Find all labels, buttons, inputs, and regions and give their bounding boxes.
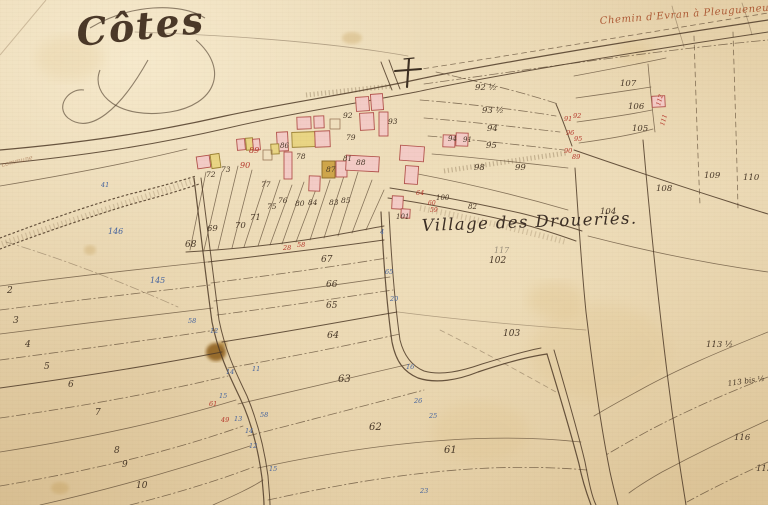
parcel-boundaries-part [0, 330, 216, 360]
building-pink [315, 131, 331, 148]
parcel-number: 81 [343, 155, 352, 163]
parcel-number: 100 [436, 194, 450, 202]
building-yellow [292, 132, 316, 148]
road-network-part [2, 180, 196, 244]
parcel-number: 105 [632, 124, 648, 134]
building-pink [309, 176, 321, 191]
parcel-boundaries-part [258, 438, 581, 468]
parcel-number: 92 ½ [475, 82, 497, 93]
parcel-number: 4 [24, 340, 31, 350]
building-pink [284, 152, 292, 179]
parcel-boundaries-part [204, 172, 222, 250]
parcel-boundaries-part [130, 466, 256, 505]
parcel-number: 28 [282, 244, 291, 252]
parcel-number: 15 [269, 465, 277, 473]
parcel-boundaries-part [190, 172, 206, 250]
parcel-boundaries-part [296, 184, 318, 242]
parcel-number: 9 [122, 460, 128, 470]
parcel-boundaries-part [352, 180, 372, 233]
parcel-number: 78 [296, 152, 306, 161]
parcel-boundaries-part [588, 236, 768, 272]
parcel-number: 108 [656, 184, 673, 194]
parcel-number: 5 [44, 362, 50, 372]
parcel-number: 20 [389, 295, 398, 303]
parcel-number: 80 [295, 199, 305, 208]
parcel-number: 62 [369, 422, 382, 433]
parcel-number: 4 [379, 228, 384, 236]
parcel-boundaries-part [556, 104, 572, 146]
parcel-number: 73 [221, 165, 231, 174]
parcel-number: 146 [108, 227, 123, 236]
parcel-number: 111 [659, 114, 669, 127]
building-yellow [210, 153, 221, 168]
parcel-number: 77 [261, 180, 271, 189]
parcel-number: 94 [487, 124, 498, 134]
parcel-boundaries-part [629, 420, 768, 493]
cadastral-map-scan: 2345678910616263646566676869707172737576… [0, 0, 768, 505]
parcel-number: 8 [114, 446, 120, 456]
parcel-number: 145 [150, 276, 165, 285]
parcel-number: 79 [346, 133, 356, 142]
parcel-number: 103 [503, 329, 520, 339]
parcel-boundaries-part [232, 170, 252, 248]
parcel-boundaries-part [733, 32, 738, 210]
building-pink [400, 145, 425, 162]
parcel-boundaries-part [222, 312, 397, 342]
wayside-cross-symbol-part [395, 69, 421, 71]
parcel-number: 60 [428, 200, 436, 207]
parcel-numbers-layer: 2345678910616263646566676869707172737576… [6, 79, 768, 495]
building-pink [314, 116, 324, 128]
parcel-number: 58 [260, 411, 268, 419]
parcel-number: 101 [396, 213, 409, 221]
parcel-boundaries-part [282, 182, 304, 244]
parcel-number: 70 [235, 221, 246, 231]
parcel-number: 115 [756, 464, 768, 474]
wayside-cross-symbol-part [404, 58, 414, 59]
road-network-part [194, 178, 264, 505]
parcel-number: 94 [448, 135, 457, 143]
parcel-number: 68 [185, 240, 197, 250]
parcel-boundaries-part [694, 36, 700, 205]
parcel-number: 92 [573, 112, 581, 120]
parcel-number: 102 [489, 256, 506, 266]
parcel-boundaries-part [0, 400, 236, 452]
parcel-number: 89 [572, 153, 580, 161]
parcel-boundaries-part [0, 308, 213, 334]
parcel-number: 71 [250, 213, 261, 223]
road-network-part [0, 176, 196, 238]
building-pink [196, 155, 211, 169]
parcel-number: 64 [416, 189, 424, 197]
parcel-boundaries-part [258, 180, 280, 246]
parcel-number: 82 [468, 203, 477, 211]
parcel-number: 106 [628, 102, 645, 112]
parcel-boundaries-part [211, 258, 387, 283]
parcel-boundaries-part [228, 334, 400, 368]
parcel-number: 14 [245, 427, 253, 435]
parcel-number: 93 [388, 117, 398, 126]
parcel-boundaries-part [574, 150, 768, 214]
paper-stains-layer-part [342, 32, 362, 44]
parcel-number: 64 [327, 330, 339, 341]
parcel-number: 93 ½ [482, 105, 504, 116]
parcel-number: 84 [308, 198, 318, 207]
parcel-number: 16 [406, 363, 414, 371]
parcel-number: 12 [249, 442, 257, 450]
parcel-number: 11 [252, 365, 260, 373]
building-open [330, 119, 340, 129]
parcel-number: 41 [100, 181, 109, 189]
parcel-number: 98 [474, 163, 485, 173]
parcel-boundaries-part [238, 364, 410, 404]
wayside-cross-symbol [395, 58, 421, 87]
parcel-boundaries-part [0, 262, 207, 286]
parcel-number: 116 [734, 433, 751, 443]
parcel-number: 69 [207, 224, 218, 234]
parcel-number: 76 [278, 196, 288, 205]
parcel-number: 65 [385, 268, 393, 276]
parcel-boundaries-part [40, 446, 250, 505]
parcel-boundaries-part [214, 277, 390, 301]
parcel-number: 7 [95, 408, 101, 418]
parcel-boundaries-part [213, 480, 263, 505]
parcel-number: 109 [704, 171, 721, 181]
road-network-part [415, 13, 768, 70]
parcel-number: 58 [297, 241, 305, 249]
wayside-cross-symbol-part [407, 59, 409, 87]
parcel-boundaries-part [268, 467, 587, 500]
parcel-boundaries-part [436, 72, 558, 104]
parcel-number: 88 [356, 158, 366, 167]
parcel-number: 75 [267, 202, 277, 211]
parcel-number: 15 [219, 392, 227, 400]
paper-stains-layer-part [616, 41, 652, 63]
building-pink [356, 97, 370, 112]
margin-note-label: commune [1, 153, 34, 169]
parcel-boundaries-part [208, 240, 384, 262]
parcel-boundaries-part [418, 174, 568, 210]
building-pink [379, 112, 388, 136]
parcel-boundaries-part [576, 87, 651, 98]
road-network-part [389, 212, 541, 373]
parcel-boundaries-part [324, 176, 344, 238]
parcel-number: 89 [249, 146, 259, 155]
section-title: Côtes [74, 0, 207, 55]
road-network-part [0, 184, 199, 249]
parcel-number: 113 ½ [706, 339, 733, 350]
parcel-number: 59 [430, 207, 438, 214]
parcel-number: 92 [343, 111, 353, 120]
parcel-number: 14 [226, 368, 234, 376]
building-pink [404, 166, 418, 185]
parcel-number: 23 [419, 487, 428, 495]
parcel-number: 110 [743, 173, 760, 183]
map-canvas: 2345678910616263646566676869707172737576… [0, 0, 768, 505]
parcel-number: 10 [136, 481, 148, 491]
paper-stains-layer-part [84, 245, 96, 255]
parcel-number: 13 [234, 415, 242, 423]
paper-stains-layer-part [528, 282, 584, 318]
parcel-number: 12 [210, 327, 218, 335]
parcel-number: 63 [338, 374, 351, 385]
parcel-number: 25 [428, 412, 437, 420]
paper-stains-layer-part [530, 304, 670, 400]
parcel-number: 95 [574, 135, 582, 143]
parcel-number: 86 [280, 142, 289, 150]
parcel-boundaries-part [0, 426, 243, 486]
building-pink [297, 117, 311, 129]
parcel-number: 49 [220, 416, 229, 424]
building-pink [370, 94, 383, 111]
building-open [263, 150, 272, 160]
parcel-number: 83 [329, 198, 339, 207]
parcel-number: 107 [620, 79, 637, 89]
parcel-number: 26 [413, 397, 422, 405]
paper-stains-layer-part [51, 482, 69, 494]
parcel-number: 90 [240, 161, 250, 170]
building-pink [392, 196, 404, 210]
parcel-boundaries-part [248, 390, 424, 436]
parcel-boundaries-part [0, 352, 222, 388]
parcel-number: 61 [444, 445, 457, 456]
parcel-boundaries-part [432, 154, 568, 168]
building-pink [360, 113, 375, 131]
parcel-number: 95 [486, 141, 497, 151]
parcel-number: 67 [321, 255, 333, 265]
parcel-number: 3 [13, 316, 19, 326]
building-pink [237, 139, 246, 151]
parcel-boundaries-part [270, 185, 292, 245]
parcel-number: 99 [515, 163, 526, 173]
parcel-number: 65 [326, 301, 338, 311]
page-corner-crease [0, 0, 46, 55]
parcel-number: 2 [6, 286, 13, 296]
parcel-number: 6 [68, 380, 74, 390]
parcel-number: 91 [463, 136, 472, 144]
parcel-boundaries-part [0, 285, 210, 310]
parcel-number: 91 [564, 115, 572, 123]
parcel-number: 72 [206, 170, 216, 179]
parcel-number: 58 [188, 317, 196, 325]
parcel-number: 66 [326, 280, 338, 290]
parcel-number: 87 [326, 165, 336, 174]
parcel-number: 85 [341, 196, 351, 205]
parcel-number: 61 [209, 400, 217, 408]
parcel-boundaries-part [444, 153, 566, 171]
parcel-number: 117 [494, 246, 510, 255]
parcel-boundaries-part [217, 290, 393, 315]
